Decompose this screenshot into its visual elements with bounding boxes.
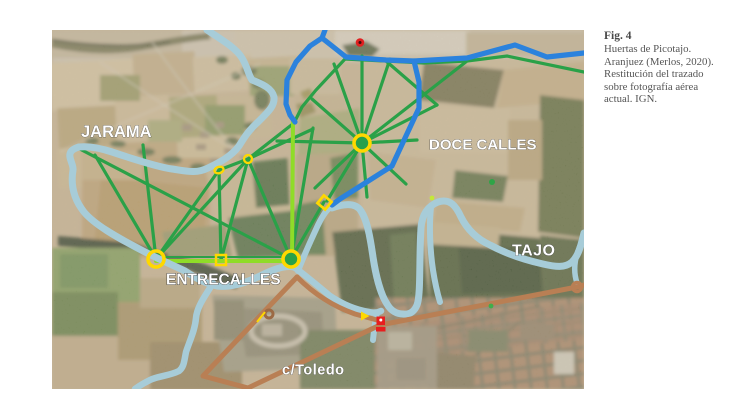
svg-text:c/Toledo: c/Toledo — [282, 363, 345, 379]
svg-text:ENTRECALLES: ENTRECALLES — [166, 272, 281, 289]
svg-text:JARAMA: JARAMA — [81, 123, 152, 141]
svg-text:DOCE CALLES: DOCE CALLES — [429, 137, 537, 154]
svg-text:TAJO: TAJO — [512, 243, 555, 260]
